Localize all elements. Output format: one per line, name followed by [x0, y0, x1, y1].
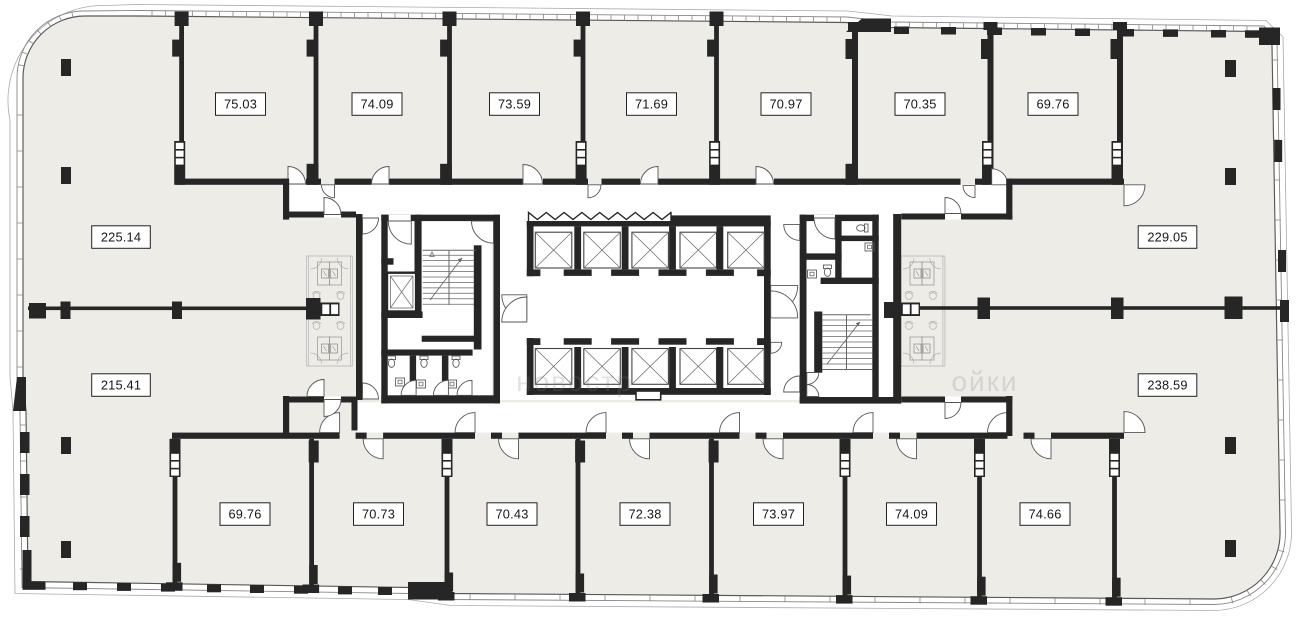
svg-text:71.69: 71.69: [635, 97, 668, 112]
svg-text:74.66: 74.66: [1028, 507, 1061, 522]
svg-text:70.97: 70.97: [769, 97, 802, 112]
svg-text:70.43: 70.43: [495, 507, 528, 522]
svg-text:238.59: 238.59: [1147, 378, 1187, 393]
svg-text:74.09: 74.09: [360, 97, 393, 112]
svg-text:215.41: 215.41: [101, 378, 141, 393]
svg-text:75.03: 75.03: [224, 97, 257, 112]
svg-text:69.76: 69.76: [228, 507, 261, 522]
svg-text:70.73: 70.73: [362, 507, 395, 522]
svg-text:229.05: 229.05: [1147, 230, 1187, 245]
svg-text:74.09: 74.09: [895, 507, 928, 522]
svg-text:69.76: 69.76: [1036, 97, 1069, 112]
svg-text:72.38: 72.38: [628, 507, 661, 522]
svg-text:70.35: 70.35: [903, 97, 936, 112]
svg-text:73.59: 73.59: [498, 97, 531, 112]
svg-text:новостр: новостр: [516, 366, 634, 397]
svg-text:225.14: 225.14: [101, 230, 141, 245]
svg-text:ойки: ойки: [951, 366, 1018, 397]
svg-text:73.97: 73.97: [762, 507, 795, 522]
